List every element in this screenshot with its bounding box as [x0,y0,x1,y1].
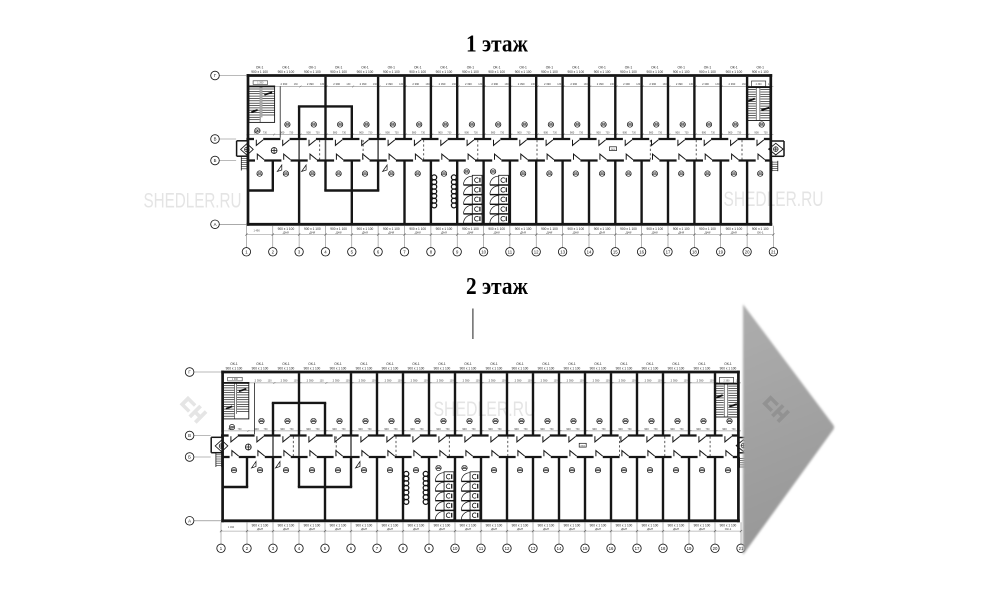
svg-text:130: 130 [373,83,378,86]
svg-text:730: 730 [420,428,425,431]
svg-text:730: 730 [421,131,426,134]
svg-text:19: 19 [687,546,692,551]
svg-text:130: 130 [632,380,637,383]
svg-text:130: 130 [689,83,694,86]
svg-text:130: 130 [502,380,507,383]
svg-text:ДН8: ДН8 [730,231,737,235]
svg-text:ОК-1: ОК-1 [677,66,685,70]
svg-text:130: 130 [584,83,589,86]
svg-text:130: 130 [636,83,641,86]
svg-text:900: 900 [412,130,417,134]
svg-text:900: 900 [596,130,601,134]
svg-text:900: 900 [618,427,623,431]
svg-text:730: 730 [474,131,479,134]
svg-text:ОК-1: ОК-1 [440,66,448,70]
svg-text:1 390: 1 390 [232,378,239,381]
svg-text:ОК-1: ОК-1 [757,231,764,235]
svg-text:2 390: 2 390 [724,380,731,383]
svg-text:900: 900 [462,427,467,431]
svg-text:В: В [214,137,217,142]
svg-text:ОК-1: ОК-1 [620,362,628,366]
svg-text:ОК-1: ОК-1 [282,362,290,366]
svg-text:730: 730 [498,428,503,431]
svg-text:ДН8: ДН8 [516,527,523,531]
svg-text:ОК-1: ОК-1 [698,362,706,366]
svg-text:900 x 1 100: 900 x 1 100 [512,367,529,371]
svg-text:900 x 1 100: 900 x 1 100 [382,367,399,371]
svg-text:ДН8: ДН8 [440,231,447,235]
svg-text:130: 130 [294,83,299,86]
svg-text:ОК-1: ОК-1 [546,66,554,70]
svg-text:900: 900 [280,130,285,134]
svg-text:2 390: 2 390 [307,82,314,86]
svg-text:ОК-1: ОК-1 [756,66,764,70]
svg-text:ОК-1: ОК-1 [256,66,264,70]
svg-text:2 390: 2 390 [544,82,551,86]
svg-text:ДН8: ДН8 [677,231,684,235]
svg-text:ДН8: ДН8 [282,231,289,235]
svg-text:900 x 1 100: 900 x 1 100 [460,367,477,371]
svg-text:19: 19 [718,249,723,254]
svg-text:ОК-1: ОК-1 [414,66,422,70]
svg-text:900 x 1 100: 900 x 1 100 [383,70,400,74]
svg-text:14: 14 [557,546,562,551]
svg-text:730: 730 [263,131,268,134]
svg-text:730: 730 [654,428,659,431]
svg-text:730: 730 [602,428,607,431]
svg-text:730: 730 [550,428,555,431]
svg-text:ОК-1: ОК-1 [282,66,290,70]
svg-text:14: 14 [587,249,592,254]
svg-text:ОК-1: ОК-1 [568,362,576,366]
svg-text:17: 17 [666,249,671,254]
svg-text:2 390: 2 390 [412,82,419,86]
svg-text:730: 730 [658,131,663,134]
svg-text:900: 900 [517,130,522,134]
svg-text:900 x 1 100: 900 x 1 100 [488,70,505,74]
svg-text:ОК-1: ОК-1 [519,66,527,70]
svg-text:900 x 1 100: 900 x 1 100 [278,70,295,74]
svg-text:900: 900 [514,427,519,431]
svg-text:130: 130 [320,380,325,383]
svg-text:900 x 1 100: 900 x 1 100 [726,70,743,74]
svg-text:SHEDLER.RU: SHEDLER.RU [434,398,536,421]
svg-text:ОК-1: ОК-1 [412,362,420,366]
svg-text:730: 730 [764,131,769,134]
svg-text:2 390: 2 390 [518,82,525,86]
svg-text:130: 130 [710,380,715,383]
svg-text:130: 130 [452,83,457,86]
svg-text:2 390: 2 390 [671,379,678,383]
svg-text:900 x 1 100: 900 x 1 100 [357,70,374,74]
svg-text:ОК-1: ОК-1 [256,362,264,366]
svg-text:2 390: 2 390 [359,379,366,383]
svg-text:ДН8: ДН8 [572,231,579,235]
svg-text:2 390: 2 390 [385,379,392,383]
svg-text:730: 730 [524,428,529,431]
svg-text:900: 900 [332,427,337,431]
svg-text:130: 130 [715,83,720,86]
svg-text:ОК-1: ОК-1 [464,362,472,366]
svg-text:730: 730 [606,131,611,134]
svg-text:ДН8: ДН8 [414,231,421,235]
svg-text:130: 130 [399,83,404,86]
svg-text:17: 17 [635,546,640,551]
svg-text:18: 18 [661,546,666,551]
svg-text:2 390: 2 390 [649,82,656,86]
svg-text:900: 900 [410,427,415,431]
svg-text:730: 730 [238,428,243,431]
svg-text:730: 730 [737,131,742,134]
svg-text:900 x 1 100: 900 x 1 100 [564,367,581,371]
svg-text:1 490: 1 490 [228,526,235,529]
svg-text:130: 130 [476,380,481,383]
svg-text:900: 900 [696,427,701,431]
svg-text:ОК-1: ОК-1 [438,362,446,366]
svg-text:20: 20 [745,249,750,254]
svg-text:130: 130 [398,380,403,383]
svg-text:900 x 1 100: 900 x 1 100 [668,367,685,371]
svg-text:2 390: 2 390 [281,379,288,383]
svg-text:13: 13 [531,546,536,551]
svg-text:ОК-1: ОК-1 [230,362,238,366]
svg-text:900 x 1 100: 900 x 1 100 [486,367,503,371]
svg-text:ОК-1: ОК-1 [730,66,738,70]
svg-text:2 390: 2 390 [729,82,736,86]
svg-text:ДН8: ДН8 [625,231,632,235]
svg-text:ОК-1: ОК-1 [361,66,369,70]
svg-text:ДН8: ДН8 [620,527,627,531]
svg-text:130: 130 [346,380,351,383]
svg-text:ДН8: ДН8 [412,527,419,531]
svg-text:900 x 1 100: 900 x 1 100 [752,70,769,74]
svg-text:900 x 1 100: 900 x 1 100 [226,367,243,371]
svg-text:730: 730 [290,428,295,431]
svg-text:ДН8: ДН8 [493,231,500,235]
svg-text:2 390: 2 390 [619,379,626,383]
svg-text:ДН8: ДН8 [335,231,342,235]
svg-text:900 x 1 100: 900 x 1 100 [616,367,633,371]
svg-text:2 390: 2 390 [439,82,446,86]
svg-text:130: 130 [531,83,536,86]
svg-text:ОК-1: ОК-1 [388,66,396,70]
svg-text:12: 12 [534,249,539,254]
svg-text:900 x 1 100: 900 x 1 100 [278,367,295,371]
svg-text:900: 900 [566,427,571,431]
svg-text:900: 900 [385,130,390,134]
svg-text:21: 21 [771,249,776,254]
svg-text:ОК-1: ОК-1 [309,66,317,70]
svg-text:900: 900 [488,427,493,431]
svg-text:730: 730 [579,131,584,134]
svg-text:2 390: 2 390 [255,379,262,383]
svg-text:2 390: 2 390 [702,82,709,86]
svg-text:ОК-1: ОК-1 [334,362,342,366]
svg-text:ОК-1: ОК-1 [672,362,680,366]
svg-text:SHEDLER.RU: SHEDLER.RU [144,189,242,212]
svg-text:900: 900 [722,427,727,431]
svg-text:900: 900 [623,130,628,134]
svg-text:ДН8: ДН8 [704,231,711,235]
svg-text:Б: Б [214,158,217,163]
svg-text:730: 730 [368,428,373,431]
svg-text:730: 730 [628,428,633,431]
svg-text:ДН8: ДН8 [438,527,445,531]
svg-text:13: 13 [560,249,565,254]
svg-text:730: 730 [632,131,637,134]
svg-text:130: 130 [580,380,585,383]
svg-text:2 390: 2 390 [676,82,683,86]
svg-text:2 390: 2 390 [307,379,314,383]
svg-text:ОК-1: ОК-1 [335,66,343,70]
svg-text:ДН8: ДН8 [546,231,553,235]
svg-text:1 этаж: 1 этаж [466,32,529,58]
svg-text:2 390: 2 390 [567,379,574,383]
svg-text:ДН8: ДН8 [308,527,315,531]
svg-text:730: 730 [706,428,711,431]
svg-text:900: 900 [702,130,707,134]
svg-text:2 390: 2 390 [756,83,763,86]
svg-text:130: 130 [478,83,483,86]
svg-text:900 x 1 100: 900 x 1 100 [304,70,321,74]
svg-text:130: 130 [268,380,273,383]
svg-text:ОК-1: ОК-1 [598,66,606,70]
svg-text:1 390: 1 390 [257,82,264,85]
svg-text:ДН8: ДН8 [568,527,575,531]
svg-text:2 390: 2 390 [597,82,604,86]
svg-text:ОК-1: ОК-1 [651,66,659,70]
svg-text:900 x 1 100: 900 x 1 100 [409,70,426,74]
svg-text:ДН8: ДН8 [308,231,315,235]
svg-text:900 x 1 100: 900 x 1 100 [462,70,479,74]
svg-text:2 390: 2 390 [465,82,472,86]
svg-text:2 390: 2 390 [541,379,548,383]
svg-text:730: 730 [553,131,558,134]
svg-text:10: 10 [481,249,486,254]
svg-text:730: 730 [732,428,737,431]
svg-text:ДН8: ДН8 [698,527,705,531]
svg-text:ДН8: ДН8 [387,231,394,235]
svg-text:ОК-1: ОК-1 [594,362,602,366]
svg-text:ОК-1: ОК-1 [493,66,501,70]
svg-text:2 390: 2 390 [593,379,600,383]
svg-text:В: В [188,433,191,438]
svg-text:ОК-1: ОК-1 [542,362,550,366]
svg-text:SHEDLER.RU: SHEDLER.RU [724,188,824,211]
svg-text:130: 130 [372,380,377,383]
svg-text:16: 16 [639,249,644,254]
svg-text:12: 12 [505,546,510,551]
svg-text:900 x 1 100: 900 x 1 100 [673,70,690,74]
svg-text:730: 730 [526,131,531,134]
svg-text:ДН8: ДН8 [256,527,263,531]
svg-text:20: 20 [713,546,718,551]
svg-text:730: 730 [576,428,581,431]
svg-text:ОК-1: ОК-1 [724,362,732,366]
svg-text:900 x 1 100: 900 x 1 100 [567,70,584,74]
svg-text:ОК-1: ОК-1 [704,66,712,70]
svg-text:900: 900 [544,130,549,134]
svg-text:130: 130 [450,380,455,383]
svg-text:130: 130 [663,83,668,86]
svg-text:900 x 1 100: 900 x 1 100 [330,367,347,371]
svg-text:А: А [214,222,217,227]
svg-text:900 x 1 100: 900 x 1 100 [436,70,453,74]
svg-text:900: 900 [754,130,759,134]
svg-text:ДН8: ДН8 [598,231,605,235]
svg-text:ДН8: ДН8 [519,231,526,235]
svg-text:2 390: 2 390 [463,379,470,383]
svg-text:130: 130 [610,83,615,86]
svg-text:130: 130 [684,380,689,383]
svg-text:900: 900 [280,427,285,431]
svg-text:130: 130 [557,83,562,86]
svg-text:730: 730 [342,428,347,431]
svg-text:130: 130 [742,83,747,86]
svg-text:2 390: 2 390 [411,379,418,383]
svg-text:ДН8: ДН8 [646,527,653,531]
svg-text:900: 900 [254,427,259,431]
svg-text:730: 730 [289,131,294,134]
svg-text:730: 730 [316,428,321,431]
svg-text:130: 130 [294,380,299,383]
svg-text:130: 130 [505,83,510,86]
svg-text:900 x 1 100: 900 x 1 100 [594,70,611,74]
svg-text:16: 16 [609,546,614,551]
svg-text:ДН8: ДН8 [282,527,289,531]
svg-text:ДН8: ДН8 [386,527,393,531]
svg-text:ДН8: ДН8 [464,527,471,531]
svg-text:ДН8: ДН8 [490,527,497,531]
svg-text:900 x 1 100: 900 x 1 100 [720,367,737,371]
svg-text:900: 900 [728,130,733,134]
svg-text:11: 11 [479,546,484,551]
svg-text:2 390: 2 390 [623,82,630,86]
svg-text:900: 900 [540,427,545,431]
svg-text:730: 730 [316,131,321,134]
svg-text:ОК-1: ОК-1 [386,362,394,366]
svg-text:900 x 1 100: 900 x 1 100 [699,70,716,74]
svg-text:2 390: 2 390 [281,82,288,86]
svg-text:ОК-1: ОК-1 [625,66,633,70]
svg-text:Б: Б [188,455,191,460]
svg-text:2 390: 2 390 [645,379,652,383]
svg-text:2 390: 2 390 [570,82,577,86]
svg-text:ОК-1: ОК-1 [467,66,475,70]
svg-text:730: 730 [500,131,505,134]
svg-text:ОК-1: ОК-1 [646,362,654,366]
svg-text:900 x 1 100: 900 x 1 100 [541,70,558,74]
svg-text:15: 15 [613,249,618,254]
svg-text:900: 900 [436,427,441,431]
svg-text:11: 11 [508,249,513,254]
svg-text:900: 900 [465,130,470,134]
svg-text:ДН8: ДН8 [360,527,367,531]
svg-text:730: 730 [395,131,400,134]
svg-text:ДН8: ДН8 [334,527,341,531]
svg-text:900: 900 [358,427,363,431]
svg-text:730: 730 [711,131,716,134]
svg-text:900 x 1 100: 900 x 1 100 [304,367,321,371]
svg-text:130: 130 [320,83,325,86]
svg-text:2 390: 2 390 [386,82,393,86]
svg-text:900 x 1 100: 900 x 1 100 [251,70,268,74]
svg-text:15: 15 [583,546,588,551]
svg-text:ДН8: ДН8 [542,527,549,531]
svg-text:730: 730 [680,428,685,431]
svg-text:ДН8: ДН8 [672,527,679,531]
svg-text:ДН8: ДН8 [467,231,474,235]
svg-text:900 x 1 100: 900 x 1 100 [434,367,451,371]
svg-text:900 x 1 100: 900 x 1 100 [408,367,425,371]
svg-text:730: 730 [368,131,373,134]
svg-text:900: 900 [644,427,649,431]
svg-text:10: 10 [453,546,458,551]
svg-text:130: 130 [606,380,611,383]
svg-text:ДН8: ДН8 [361,231,368,235]
svg-text:900: 900 [333,130,338,134]
svg-text:900: 900 [649,130,654,134]
svg-text:2 390: 2 390 [491,82,498,86]
svg-text:900: 900 [592,427,597,431]
svg-text:ДН8: ДН8 [594,527,601,531]
svg-text:2 390: 2 390 [360,82,367,86]
svg-text:2 390: 2 390 [437,379,444,383]
svg-text:ОК-1: ОК-1 [516,362,524,366]
svg-text:130: 130 [346,83,351,86]
svg-text:900 x 1 100: 900 x 1 100 [642,367,659,371]
svg-text:900: 900 [359,130,364,134]
svg-text:А: А [188,518,191,523]
svg-text:2 390: 2 390 [489,379,496,383]
svg-text:730: 730 [446,428,451,431]
svg-text:130: 130 [658,380,663,383]
svg-text:ОК-1: ОК-1 [490,362,498,366]
svg-text:900 x 1 100: 900 x 1 100 [694,367,711,371]
svg-text:130: 130 [426,83,431,86]
svg-text:1 490: 1 490 [253,230,260,233]
svg-text:900 x 1 100: 900 x 1 100 [515,70,532,74]
svg-text:130: 130 [528,380,533,383]
svg-text:730: 730 [447,131,452,134]
svg-text:2 390: 2 390 [333,379,340,383]
svg-text:2 390: 2 390 [333,82,340,86]
svg-text:130: 130 [424,380,429,383]
svg-text:900 x 1 100: 900 x 1 100 [252,367,269,371]
svg-text:130: 130 [554,380,559,383]
svg-text:730: 730 [472,428,477,431]
svg-text:2 этаж: 2 этаж [466,274,529,300]
svg-text:730: 730 [264,428,269,431]
svg-text:900: 900 [570,130,575,134]
svg-text:ОК-1: ОК-1 [725,527,732,531]
svg-text:730: 730 [685,131,690,134]
svg-text:900 x 1 100: 900 x 1 100 [590,367,607,371]
svg-text:900 x 1 100: 900 x 1 100 [356,367,373,371]
svg-text:900: 900 [438,130,443,134]
svg-text:900: 900 [670,427,675,431]
svg-text:900 x 1 100: 900 x 1 100 [330,70,347,74]
svg-text:ОК-1: ОК-1 [572,66,580,70]
svg-text:18: 18 [692,249,697,254]
svg-text:ОК-1: ОК-1 [360,362,368,366]
svg-text:730: 730 [342,131,347,134]
svg-text:ДН8: ДН8 [651,231,658,235]
svg-text:900: 900 [306,130,311,134]
svg-text:900: 900 [675,130,680,134]
svg-text:900 x 1 100: 900 x 1 100 [620,70,637,74]
svg-text:900 x 1 100: 900 x 1 100 [646,70,663,74]
